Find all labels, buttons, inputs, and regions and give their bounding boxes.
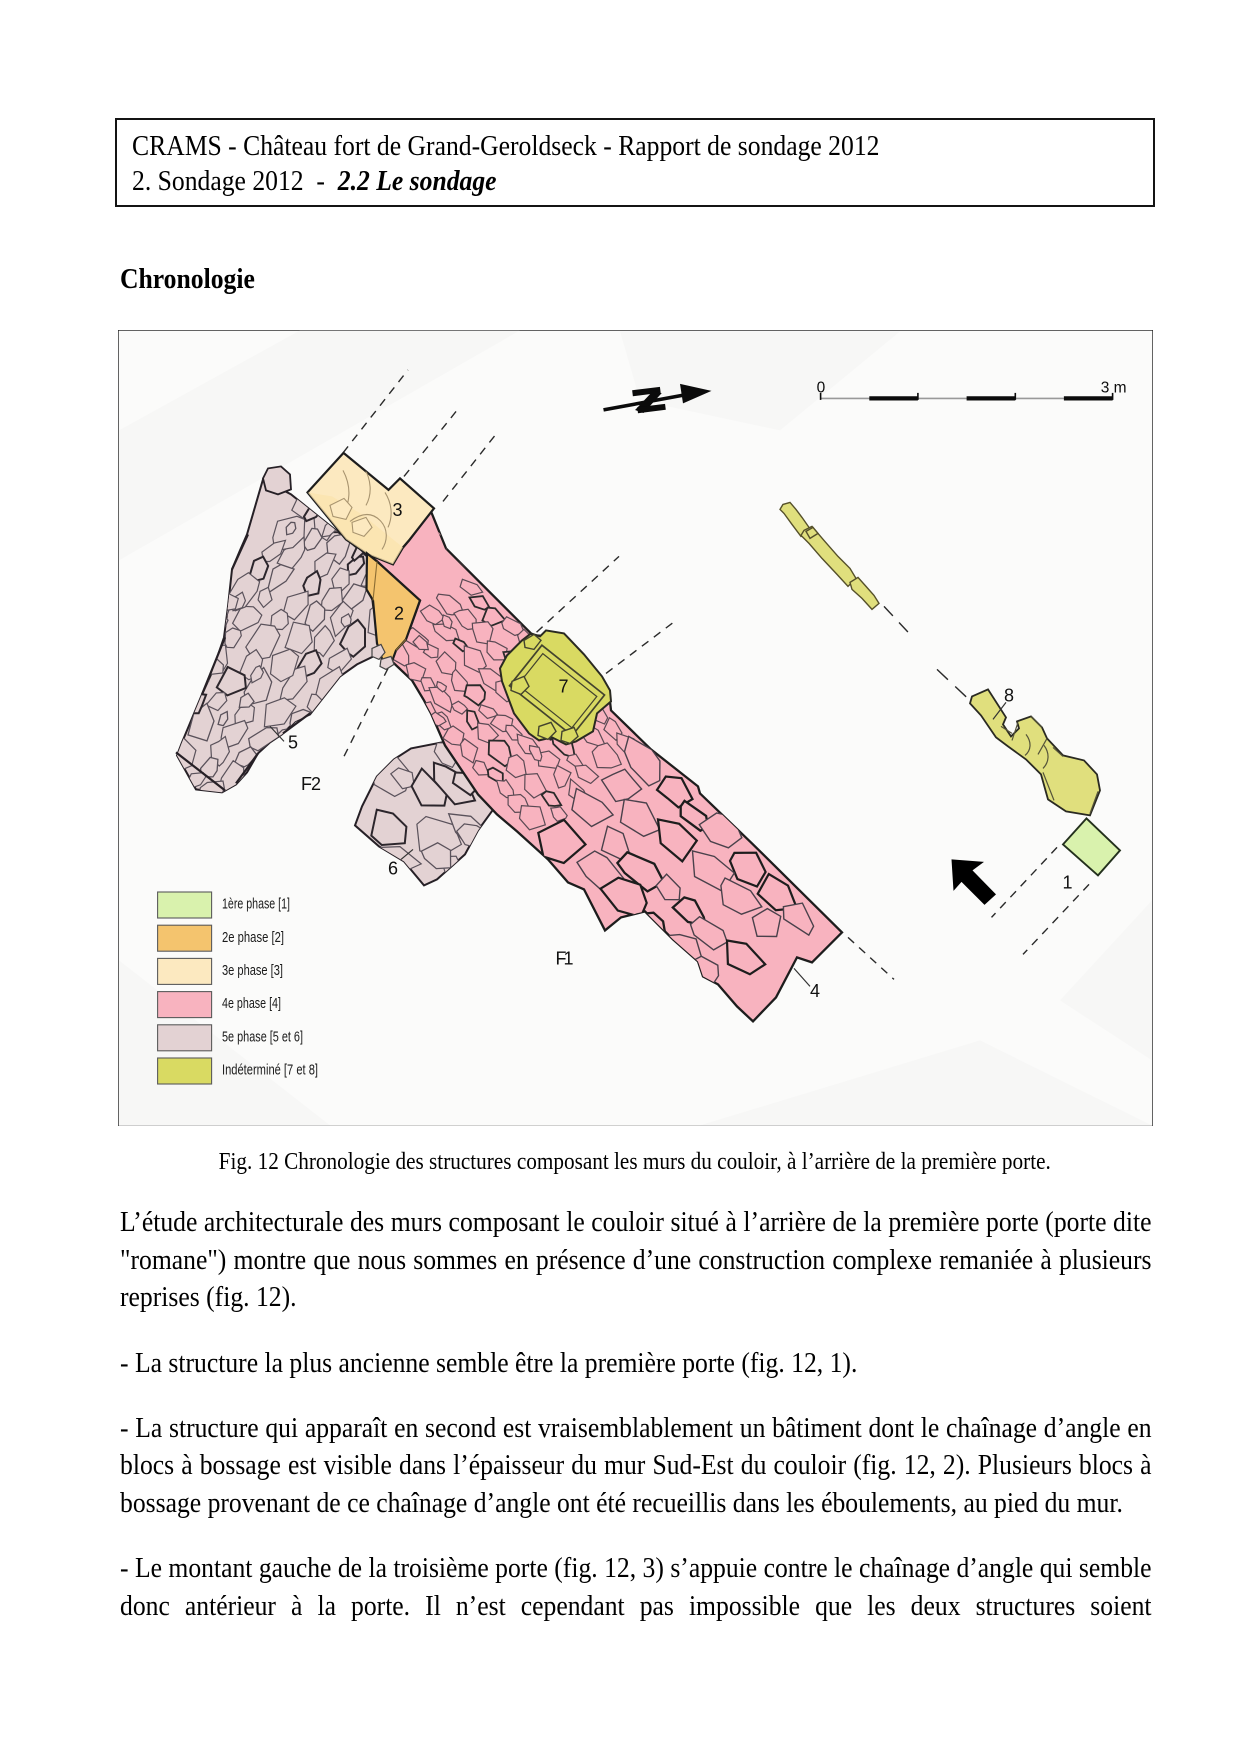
svg-text:6: 6 (388, 858, 398, 878)
svg-text:5e phase [5 et 6]: 5e phase [5 et 6] (222, 1029, 303, 1045)
svg-text:3e phase [3]: 3e phase [3] (222, 963, 283, 979)
svg-text:Indéterminé [7 et 8]: Indéterminé [7 et 8] (222, 1062, 318, 1078)
svg-text:5: 5 (288, 732, 298, 752)
svg-text:0: 0 (817, 379, 826, 396)
svg-text:3: 3 (393, 499, 403, 519)
svg-text:4e phase [4]: 4e phase [4] (222, 996, 281, 1012)
svg-text:F1: F1 (556, 948, 574, 968)
svg-text:4: 4 (810, 980, 820, 1000)
svg-text:7: 7 (559, 676, 569, 696)
svg-text:2e phase [2]: 2e phase [2] (222, 929, 284, 945)
svg-text:F2: F2 (301, 773, 321, 793)
svg-text:8: 8 (1004, 685, 1014, 705)
svg-text:1: 1 (1063, 872, 1073, 892)
svg-text:1ère phase [1]: 1ère phase [1] (222, 896, 290, 912)
svg-text:3 m: 3 m (1101, 379, 1127, 396)
svg-text:2: 2 (394, 603, 404, 623)
